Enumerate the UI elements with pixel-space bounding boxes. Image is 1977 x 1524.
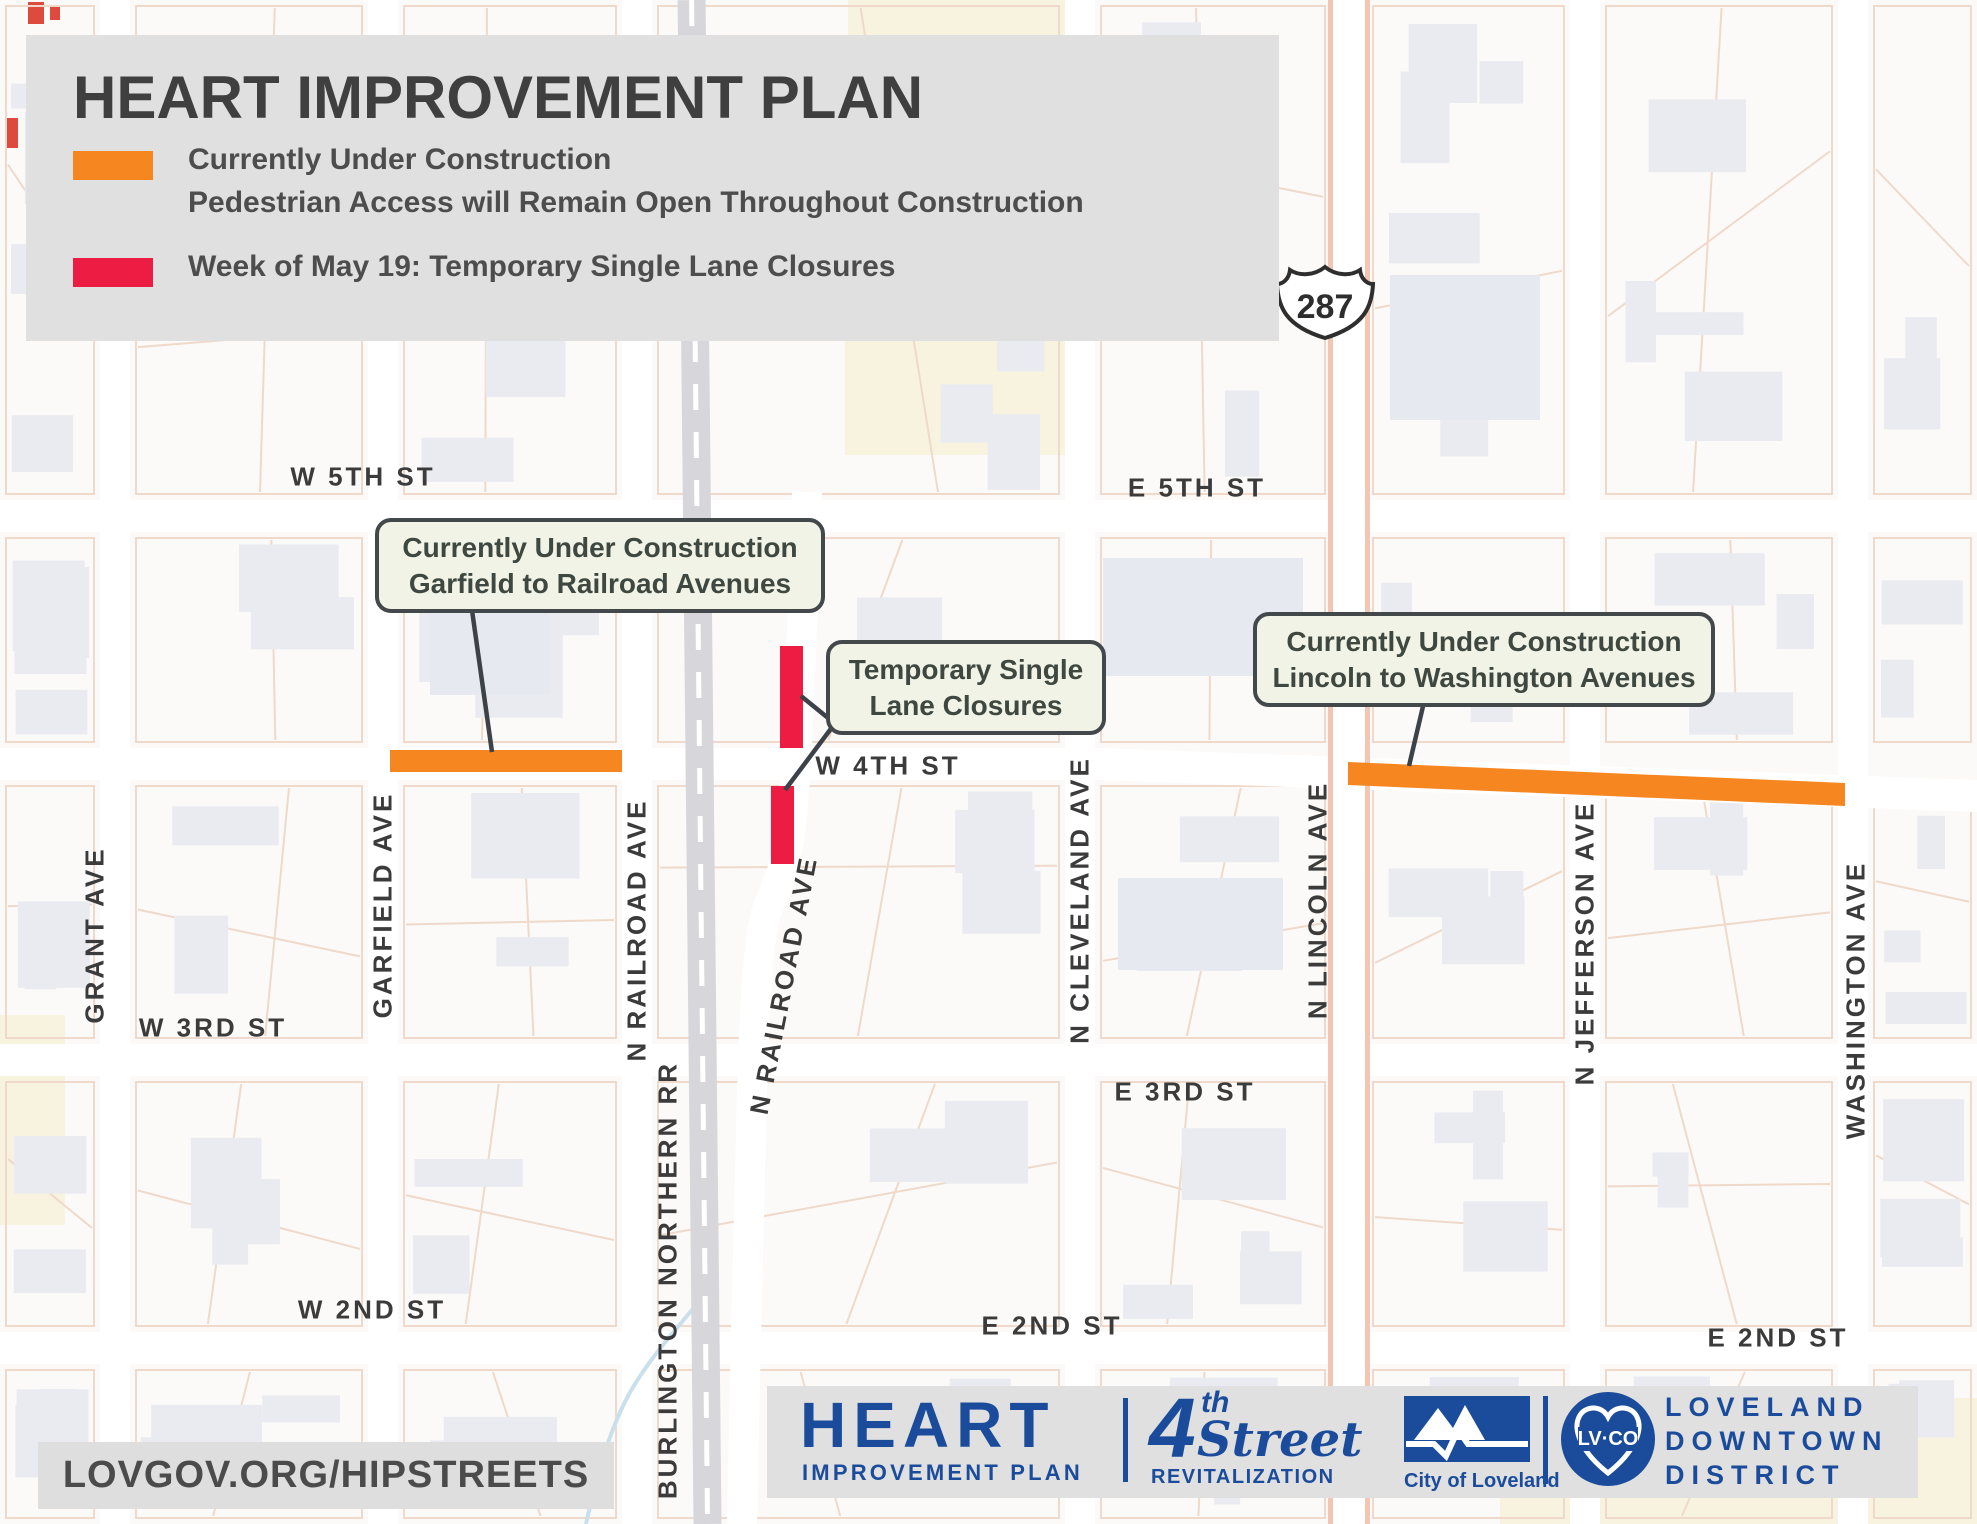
callout-lincoln-washington: Currently Under Construction Lincoln to … [1253, 612, 1715, 707]
logo-divider [1123, 1398, 1128, 1482]
building [1180, 816, 1279, 862]
parcel-line [1608, 912, 1830, 938]
label-w-4th-st: W 4TH ST [815, 751, 960, 782]
building [1480, 61, 1524, 103]
building [413, 1235, 469, 1293]
callout-line: Currently Under Construction [385, 530, 815, 566]
building [1182, 1128, 1286, 1200]
website-url: LOVGOV.ORG/HIPSTREETS [63, 1454, 589, 1497]
parcel-line [1876, 881, 1969, 901]
fourth-word: Street [1197, 1412, 1362, 1468]
building [1389, 213, 1480, 263]
fourth-subtitle: REVITALIZATION [1151, 1466, 1335, 1489]
legend-panel: HEART IMPROVEMENT PLAN Currently Under C… [26, 35, 1279, 341]
street-5th [0, 500, 1977, 532]
building [1881, 660, 1914, 718]
fourth-street-logo: 4 th Street REVITALIZATION [1149, 1386, 1399, 1498]
building [1712, 383, 1745, 439]
parcel-line [1608, 1184, 1830, 1186]
building [262, 1396, 340, 1423]
heart-logo-subtitle: IMPROVEMENT PLAN [802, 1460, 1083, 1486]
poster-title: HEART IMPROVEMENT PLAN [73, 63, 923, 132]
district-line: DOWNTOWN [1665, 1426, 1888, 1457]
parcel-line [406, 1195, 614, 1240]
logo-divider [1543, 1396, 1548, 1484]
label-n-lincoln-ave: N LINCOLN AVE [1303, 781, 1334, 1019]
url-box: LOVGOV.ORG/HIPSTREETS [38, 1442, 614, 1509]
lane-closure-north [780, 646, 803, 748]
fourth-numeral: 4 [1149, 1380, 1196, 1477]
building [945, 1101, 1028, 1184]
street-3rd [0, 1044, 1977, 1076]
legend-text: Pedestrian Access will Remain Open Throu… [188, 186, 1084, 220]
building [1917, 816, 1945, 869]
legend-swatch-closure [73, 258, 153, 287]
building [988, 414, 1040, 490]
label-w-3rd-st: W 3RD ST [139, 1013, 287, 1044]
building [239, 545, 338, 612]
label-e-2nd-st-right: E 2ND ST [1707, 1323, 1848, 1354]
building [870, 1129, 947, 1182]
callout-line: Temporary Single [836, 652, 1096, 688]
building [1710, 794, 1743, 876]
building [12, 415, 73, 472]
city-logo-caption: City of Loveland [1404, 1470, 1530, 1493]
building [955, 810, 1034, 873]
callout-line: Lincoln to Washington Avenues [1263, 660, 1705, 696]
building [471, 793, 579, 879]
logo-band: HEART IMPROVEMENT PLAN 4 th Street REVIT… [767, 1386, 1918, 1498]
parcel-line [406, 920, 614, 924]
building [1401, 71, 1450, 163]
building-large [1390, 275, 1540, 420]
building [1636, 312, 1744, 335]
building [486, 333, 566, 397]
city-of-loveland-icon [1404, 1396, 1530, 1466]
label-burlington-northern-rr: BURLINGTON NORTHERN RR [653, 1061, 684, 1499]
callout-temporary-closures: Temporary Single Lane Closures [826, 640, 1106, 735]
building [16, 690, 88, 735]
parcel-outline [1606, 1082, 1832, 1326]
shield-number: 287 [1297, 288, 1354, 326]
callout-line: Lane Closures [836, 688, 1096, 724]
district-line: DISTRICT [1665, 1460, 1846, 1491]
lane-closure-south [771, 786, 794, 864]
label-w-5th-st: W 5TH ST [290, 462, 435, 493]
building [174, 916, 228, 994]
building [1389, 868, 1489, 917]
leader-east [1409, 702, 1424, 766]
label-n-jefferson-ave: N JEFFERSON AVE [1570, 801, 1601, 1086]
callout-line: Currently Under Construction [1263, 624, 1705, 660]
building [1886, 992, 1967, 1024]
building [14, 1136, 86, 1194]
highway-edge-left [1328, 0, 1333, 1524]
building [1883, 1099, 1964, 1181]
building [1463, 1201, 1547, 1271]
street-jefferson [1570, 0, 1600, 1524]
street-washington [1838, 0, 1868, 1524]
label-washington-ave: WASHINGTON AVE [1841, 861, 1872, 1139]
building [172, 806, 278, 845]
building [191, 1138, 262, 1229]
lvco-badge-text: LV·CO [1578, 1428, 1639, 1450]
building [997, 338, 1044, 371]
building [1658, 1167, 1689, 1208]
label-grant-ave: GRANT AVE [80, 846, 111, 1023]
building [13, 561, 85, 652]
building [1655, 553, 1765, 605]
label-e-3rd-st: E 3RD ST [1114, 1077, 1255, 1108]
legend-swatch-construction [73, 151, 153, 180]
building [962, 871, 1040, 934]
building [50, 6, 60, 20]
building [1880, 1199, 1960, 1257]
label-garfield-ave: GARFIELD AVE [368, 792, 399, 1019]
district-line: LOVELAND [1665, 1392, 1870, 1423]
highway-edge-right [1365, 0, 1370, 1524]
building [1225, 391, 1259, 477]
map-poster: 287 W 5TH ST E 5TH ST W 4TH ST W 3RD ST … [0, 0, 1977, 1524]
building [1905, 317, 1937, 362]
lvco-heart-icon: LV·CO [1558, 1389, 1658, 1489]
building [1777, 594, 1814, 649]
street-lincoln-287 [1333, 0, 1365, 1524]
callout-garfield-railroad: Currently Under Construction Garfield to… [375, 518, 825, 613]
building [1434, 1112, 1505, 1143]
parcel-line [858, 788, 902, 1036]
construction-zone-garfield-railroad [390, 750, 622, 772]
legend-text: Week of May 19: Temporary Single Lane Cl… [188, 250, 895, 284]
building [1649, 99, 1746, 172]
building [1884, 930, 1920, 962]
label-e-5th-st: E 5TH ST [1128, 473, 1266, 504]
building [25, 961, 57, 990]
building [6, 118, 18, 148]
building [414, 1159, 522, 1187]
building [14, 1249, 86, 1293]
building [1123, 1285, 1193, 1319]
building [1241, 1231, 1269, 1286]
building [941, 384, 993, 442]
parcel-line [138, 910, 360, 957]
label-n-cleveland-ave: N CLEVELAND AVE [1065, 756, 1096, 1044]
label-n-railroad-ave-west: N RAILROAD AVE [622, 799, 653, 1062]
legend-text: Currently Under Construction [188, 143, 611, 177]
parcel-line [846, 1084, 934, 1324]
parcel-line [466, 1084, 499, 1324]
building [1884, 358, 1940, 429]
building [496, 937, 568, 966]
parcel-line [1876, 169, 1969, 266]
building-large [1118, 878, 1283, 970]
callout-line: Garfield to Railroad Avenues [385, 566, 815, 602]
label-e-2nd-st-mid: E 2ND ST [981, 1311, 1122, 1342]
label-w-2nd-st: W 2ND ST [298, 1295, 446, 1326]
heart-logo-title: HEART [800, 1388, 1055, 1462]
building [1882, 580, 1963, 624]
